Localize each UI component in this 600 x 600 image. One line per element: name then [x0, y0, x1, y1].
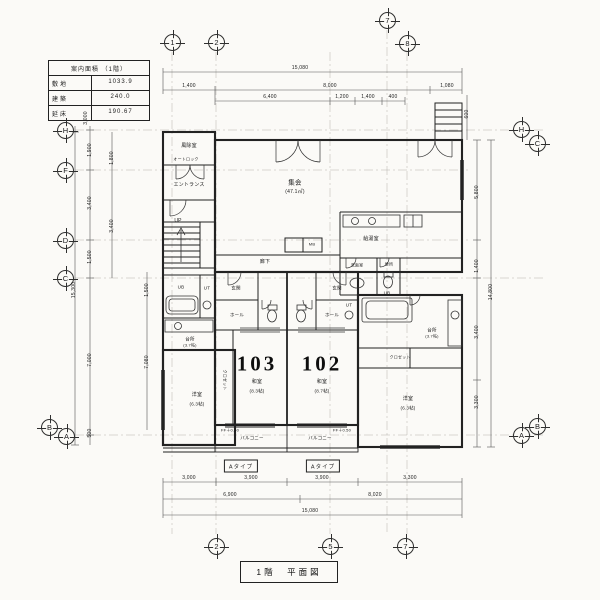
dim-left: 1,500: [144, 283, 150, 297]
room-label-entrance: エントランス: [173, 183, 204, 189]
floor-level-mark-103: FF＋0.50: [221, 429, 239, 434]
dim-right: 600: [464, 110, 470, 119]
room-label-ut-103: UT: [204, 285, 210, 290]
area-row-label: 敷地: [49, 76, 92, 90]
grid-bubble-right-a: A: [513, 427, 530, 444]
room-label-closet-102: クロゼット: [390, 356, 411, 361]
dim-top: 8,000: [323, 83, 337, 89]
grid-bubble-right-c: C: [529, 135, 546, 152]
grid-bubble-top-2: 2: [208, 34, 225, 51]
table-row: 建築 240.0: [49, 91, 149, 106]
unit-room-102: 和室: [317, 380, 327, 386]
dim-top: 1,200: [335, 94, 349, 100]
area-row-value: 240.0: [92, 91, 149, 105]
unit-number-102: 102: [302, 352, 343, 377]
room-label-closet-103: クロゼット: [222, 370, 227, 391]
dim-top: 400: [389, 94, 398, 100]
room-size-kitchen-102: (3.7帖): [425, 335, 438, 340]
room-size-western-102: (6.3帖): [401, 405, 416, 410]
unit-type-tag-102: Aタイプ: [306, 460, 340, 473]
room-label-balcony-103: バルコニー: [240, 435, 263, 440]
dim-top-total: 15,080: [292, 65, 309, 71]
dim-right: 3,400: [474, 325, 480, 339]
table-row: 延床 190.67: [49, 106, 149, 120]
dim-left: 1,900: [87, 143, 93, 157]
dim-bottom-total: 15,080: [302, 508, 319, 514]
area-row-value: 1033.9: [92, 76, 149, 90]
dim-left: 1,800: [109, 151, 115, 165]
dim-bottom: 3,300: [403, 475, 417, 481]
dim-right: 3,300: [474, 395, 480, 409]
room-label-western-102: 洋室: [403, 397, 413, 403]
room-label-balcony-102: バルコニー: [308, 435, 331, 440]
fixtures: [162, 160, 464, 449]
dim-top: 1,080: [440, 83, 454, 89]
unit-type-tag-103: Aタイプ: [224, 460, 258, 473]
dim-right-total: 14,800: [488, 284, 494, 301]
room-label-genkan-102: 玄関: [332, 285, 341, 290]
grid-bubble-left-b: B: [41, 419, 58, 436]
unit-room-103: 和室: [252, 380, 262, 386]
area-row-value: 190.67: [92, 106, 149, 120]
room-label-hall-102: ホール: [325, 312, 339, 317]
dim-bottom: 6,900: [223, 492, 237, 498]
dim-left: 3,000: [83, 111, 89, 125]
room-label-kitchenette: 給湯室: [363, 237, 379, 243]
stairs-up-label: UP: [174, 219, 181, 225]
area-summary-table: 案内面積 （1階） 敷地 1033.9 建築 240.0 延床 190.67: [48, 60, 150, 121]
dim-bottom: 3,900: [315, 475, 329, 481]
room-label-genkan-103: 玄関: [231, 285, 240, 290]
grid-bubble-bottom-5: 5: [322, 538, 339, 555]
dim-left: 3,400: [109, 219, 115, 233]
dim-bottom: 3,000: [182, 475, 196, 481]
dim-left: 7,080: [144, 355, 150, 369]
table-row: 敷地 1033.9: [49, 76, 149, 91]
room-label-washroom: 洗面室: [351, 264, 364, 269]
room-label-kitchen-102: 台所: [427, 327, 436, 332]
dimension-lines: [71, 68, 495, 518]
floorplan-sheet: 案内面積 （1階） 敷地 1033.9 建築 240.0 延床 190.67 1…: [0, 0, 600, 600]
unit-size-102: (8.7帖): [315, 388, 330, 393]
room-label-mb: MB: [309, 243, 315, 248]
drawing-title-box: 1階 平面図: [240, 561, 338, 583]
room-label-hall-103: ホール: [230, 312, 244, 317]
room-label-kitchen-103: 台所: [185, 336, 194, 341]
dim-top: 1,400: [361, 94, 375, 100]
dim-left: 3,400: [87, 196, 93, 210]
dim-left: 7,000: [87, 353, 93, 367]
room-label-autolock: オートロック: [173, 158, 198, 163]
dim-top: 6,400: [263, 94, 277, 100]
grid-bubble-top-7: 7: [379, 12, 396, 29]
dim-right: 5,800: [474, 185, 480, 199]
grid-bubble-bottom-2: 2: [208, 538, 225, 555]
unit-size-103: (8.3帖): [250, 388, 265, 393]
area-table-title: 案内面積 （1階）: [49, 61, 149, 76]
grid-bubble-bottom-7: 7: [397, 538, 414, 555]
room-label-toilet: 便所: [385, 263, 393, 268]
grid-bubble-right-h: H: [513, 121, 530, 138]
grid-bubble-top-1: 1: [164, 34, 181, 51]
dim-left: 1,500: [87, 250, 93, 264]
unit-number-103: 103: [237, 352, 278, 377]
grid-bubble-left-a: A: [58, 428, 75, 445]
room-label-ub-103: UB: [178, 284, 185, 289]
drawing-title: 1階 平面図: [256, 566, 321, 578]
dim-right: 1,400: [474, 259, 480, 273]
dim-bottom: 3,900: [244, 475, 258, 481]
floor-level-mark-102: FF＋0.50: [333, 429, 351, 434]
room-label-windbreak: 風除室: [181, 144, 197, 150]
room-label-corridor: 廊下: [260, 260, 270, 266]
room-size-kitchen-103: (3.7帖): [183, 344, 196, 349]
grid-bubble-left-d: D: [57, 232, 74, 249]
dim-top: 1,400: [182, 83, 196, 89]
dim-left-total: 15,300: [71, 282, 77, 299]
dim-left: 500: [87, 429, 93, 438]
grid-bubble-left-h: H: [57, 122, 74, 139]
room-label-meeting-room: 集会: [288, 179, 301, 186]
interior-walls: [163, 103, 462, 452]
grid-bubble-right-b: B: [529, 418, 546, 435]
room-label-ub-102: UB: [384, 290, 391, 295]
grid-bubble-top-8: 8: [399, 35, 416, 52]
room-label-ut-102: UT: [346, 302, 352, 307]
room-area-meeting-room: (47.1㎡): [285, 190, 304, 196]
area-row-label: 建築: [49, 91, 92, 105]
dim-bottom: 8,020: [368, 492, 382, 498]
grid-bubble-left-f: F: [57, 162, 74, 179]
room-label-western-103: 洋室: [192, 393, 202, 399]
room-size-western-103: (6.3帖): [190, 401, 205, 406]
